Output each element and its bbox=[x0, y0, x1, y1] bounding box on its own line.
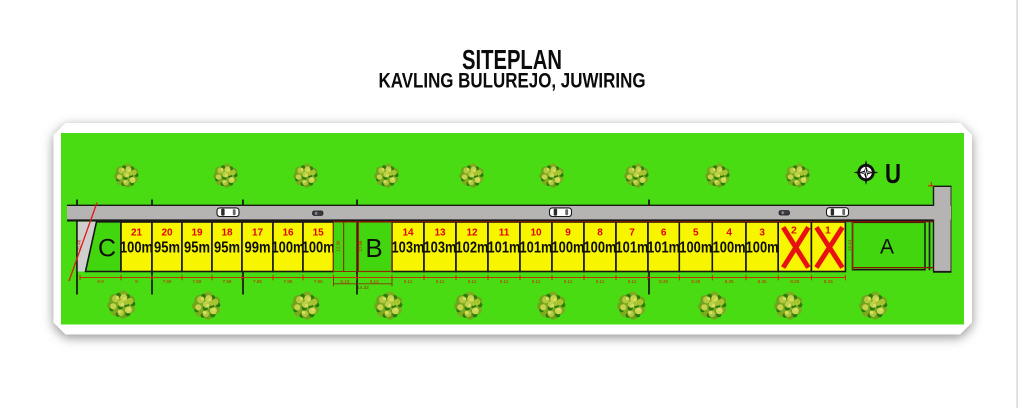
svg-text:8.11: 8.11 bbox=[500, 279, 509, 284]
svg-text:7.59: 7.59 bbox=[223, 279, 232, 284]
svg-text:101m: 101m bbox=[647, 240, 680, 257]
svg-text:8.11: 8.11 bbox=[628, 279, 637, 284]
svg-text:8.25: 8.25 bbox=[758, 279, 767, 284]
svg-text:B: B bbox=[365, 233, 382, 263]
svg-text:8.25: 8.25 bbox=[691, 279, 700, 284]
svg-text:12.98: 12.98 bbox=[358, 240, 363, 252]
svg-text:C: C bbox=[98, 235, 116, 263]
svg-text:19: 19 bbox=[191, 228, 203, 239]
svg-text:103m: 103m bbox=[392, 240, 425, 257]
svg-text:1: 1 bbox=[825, 225, 831, 237]
svg-text:5: 5 bbox=[693, 228, 699, 239]
svg-text:14: 14 bbox=[402, 228, 414, 239]
svg-text:8.11: 8.11 bbox=[404, 279, 413, 284]
svg-text:100m: 100m bbox=[584, 240, 617, 257]
svg-text:20: 20 bbox=[161, 228, 173, 239]
svg-text:8.11: 8.11 bbox=[564, 279, 573, 284]
svg-text:18: 18 bbox=[221, 228, 233, 239]
svg-text:8.11: 8.11 bbox=[532, 279, 541, 284]
svg-text:12: 12 bbox=[466, 228, 478, 239]
svg-text:12.98: 12.98 bbox=[336, 240, 341, 252]
svg-text:8.11: 8.11 bbox=[596, 279, 605, 284]
svg-text:U: U bbox=[885, 158, 901, 189]
svg-text:15: 15 bbox=[313, 228, 325, 239]
svg-text:25.46: 25.46 bbox=[77, 239, 82, 251]
svg-text:4: 4 bbox=[726, 228, 732, 239]
svg-text:21: 21 bbox=[131, 228, 143, 239]
svg-text:8: 8 bbox=[135, 279, 138, 284]
svg-text:17: 17 bbox=[252, 228, 264, 239]
svg-text:102m: 102m bbox=[456, 240, 489, 257]
svg-text:11: 11 bbox=[499, 228, 510, 239]
svg-text:7.85: 7.85 bbox=[314, 279, 323, 284]
svg-text:2: 2 bbox=[791, 225, 797, 237]
svg-text:100m: 100m bbox=[120, 240, 153, 257]
svg-text:14.32: 14.32 bbox=[357, 285, 369, 290]
svg-text:100m: 100m bbox=[679, 240, 712, 257]
svg-text:100m: 100m bbox=[302, 240, 335, 257]
svg-text:3: 3 bbox=[759, 228, 765, 239]
svg-text:10: 10 bbox=[530, 228, 542, 239]
svg-text:101m: 101m bbox=[488, 240, 521, 257]
svg-text:9: 9 bbox=[565, 228, 571, 239]
svg-text:13: 13 bbox=[434, 228, 446, 239]
svg-text:100m: 100m bbox=[272, 240, 305, 257]
svg-text:99m: 99m bbox=[245, 240, 271, 257]
svg-text:95m: 95m bbox=[214, 240, 240, 257]
svg-text:8: 8 bbox=[597, 228, 603, 239]
svg-text:8.11: 8.11 bbox=[436, 279, 445, 284]
svg-text:16: 16 bbox=[282, 228, 294, 239]
svg-text:9.9: 9.9 bbox=[97, 279, 104, 284]
svg-text:8.25: 8.25 bbox=[790, 279, 799, 284]
svg-text:8.25: 8.25 bbox=[824, 279, 833, 284]
svg-text:101m: 101m bbox=[520, 240, 553, 257]
svg-text:KAVLING BULUREJO, JUWIRING: KAVLING BULUREJO, JUWIRING bbox=[379, 69, 646, 93]
svg-text:103m: 103m bbox=[424, 240, 457, 257]
svg-text:8.25: 8.25 bbox=[659, 279, 668, 284]
svg-text:100m: 100m bbox=[552, 240, 585, 257]
svg-text:12.14: 12.14 bbox=[847, 239, 852, 251]
svg-text:9.12: 9.12 bbox=[370, 279, 379, 284]
svg-text:101m: 101m bbox=[616, 240, 649, 257]
svg-text:7.85: 7.85 bbox=[284, 279, 293, 284]
svg-text:6: 6 bbox=[661, 228, 667, 239]
svg-text:100m: 100m bbox=[713, 240, 746, 257]
svg-text:8.11: 8.11 bbox=[468, 279, 477, 284]
svg-text:95m: 95m bbox=[184, 240, 210, 257]
svg-text:8.25: 8.25 bbox=[725, 279, 734, 284]
svg-text:A: A bbox=[880, 236, 894, 259]
svg-text:95m: 95m bbox=[154, 240, 180, 257]
svg-text:7.59: 7.59 bbox=[193, 279, 202, 284]
svg-text:7: 7 bbox=[629, 228, 635, 239]
svg-text:100m: 100m bbox=[746, 240, 779, 257]
svg-text:7.59: 7.59 bbox=[163, 279, 172, 284]
svg-text:5.19: 5.19 bbox=[341, 279, 350, 284]
svg-text:7.85: 7.85 bbox=[253, 279, 262, 284]
